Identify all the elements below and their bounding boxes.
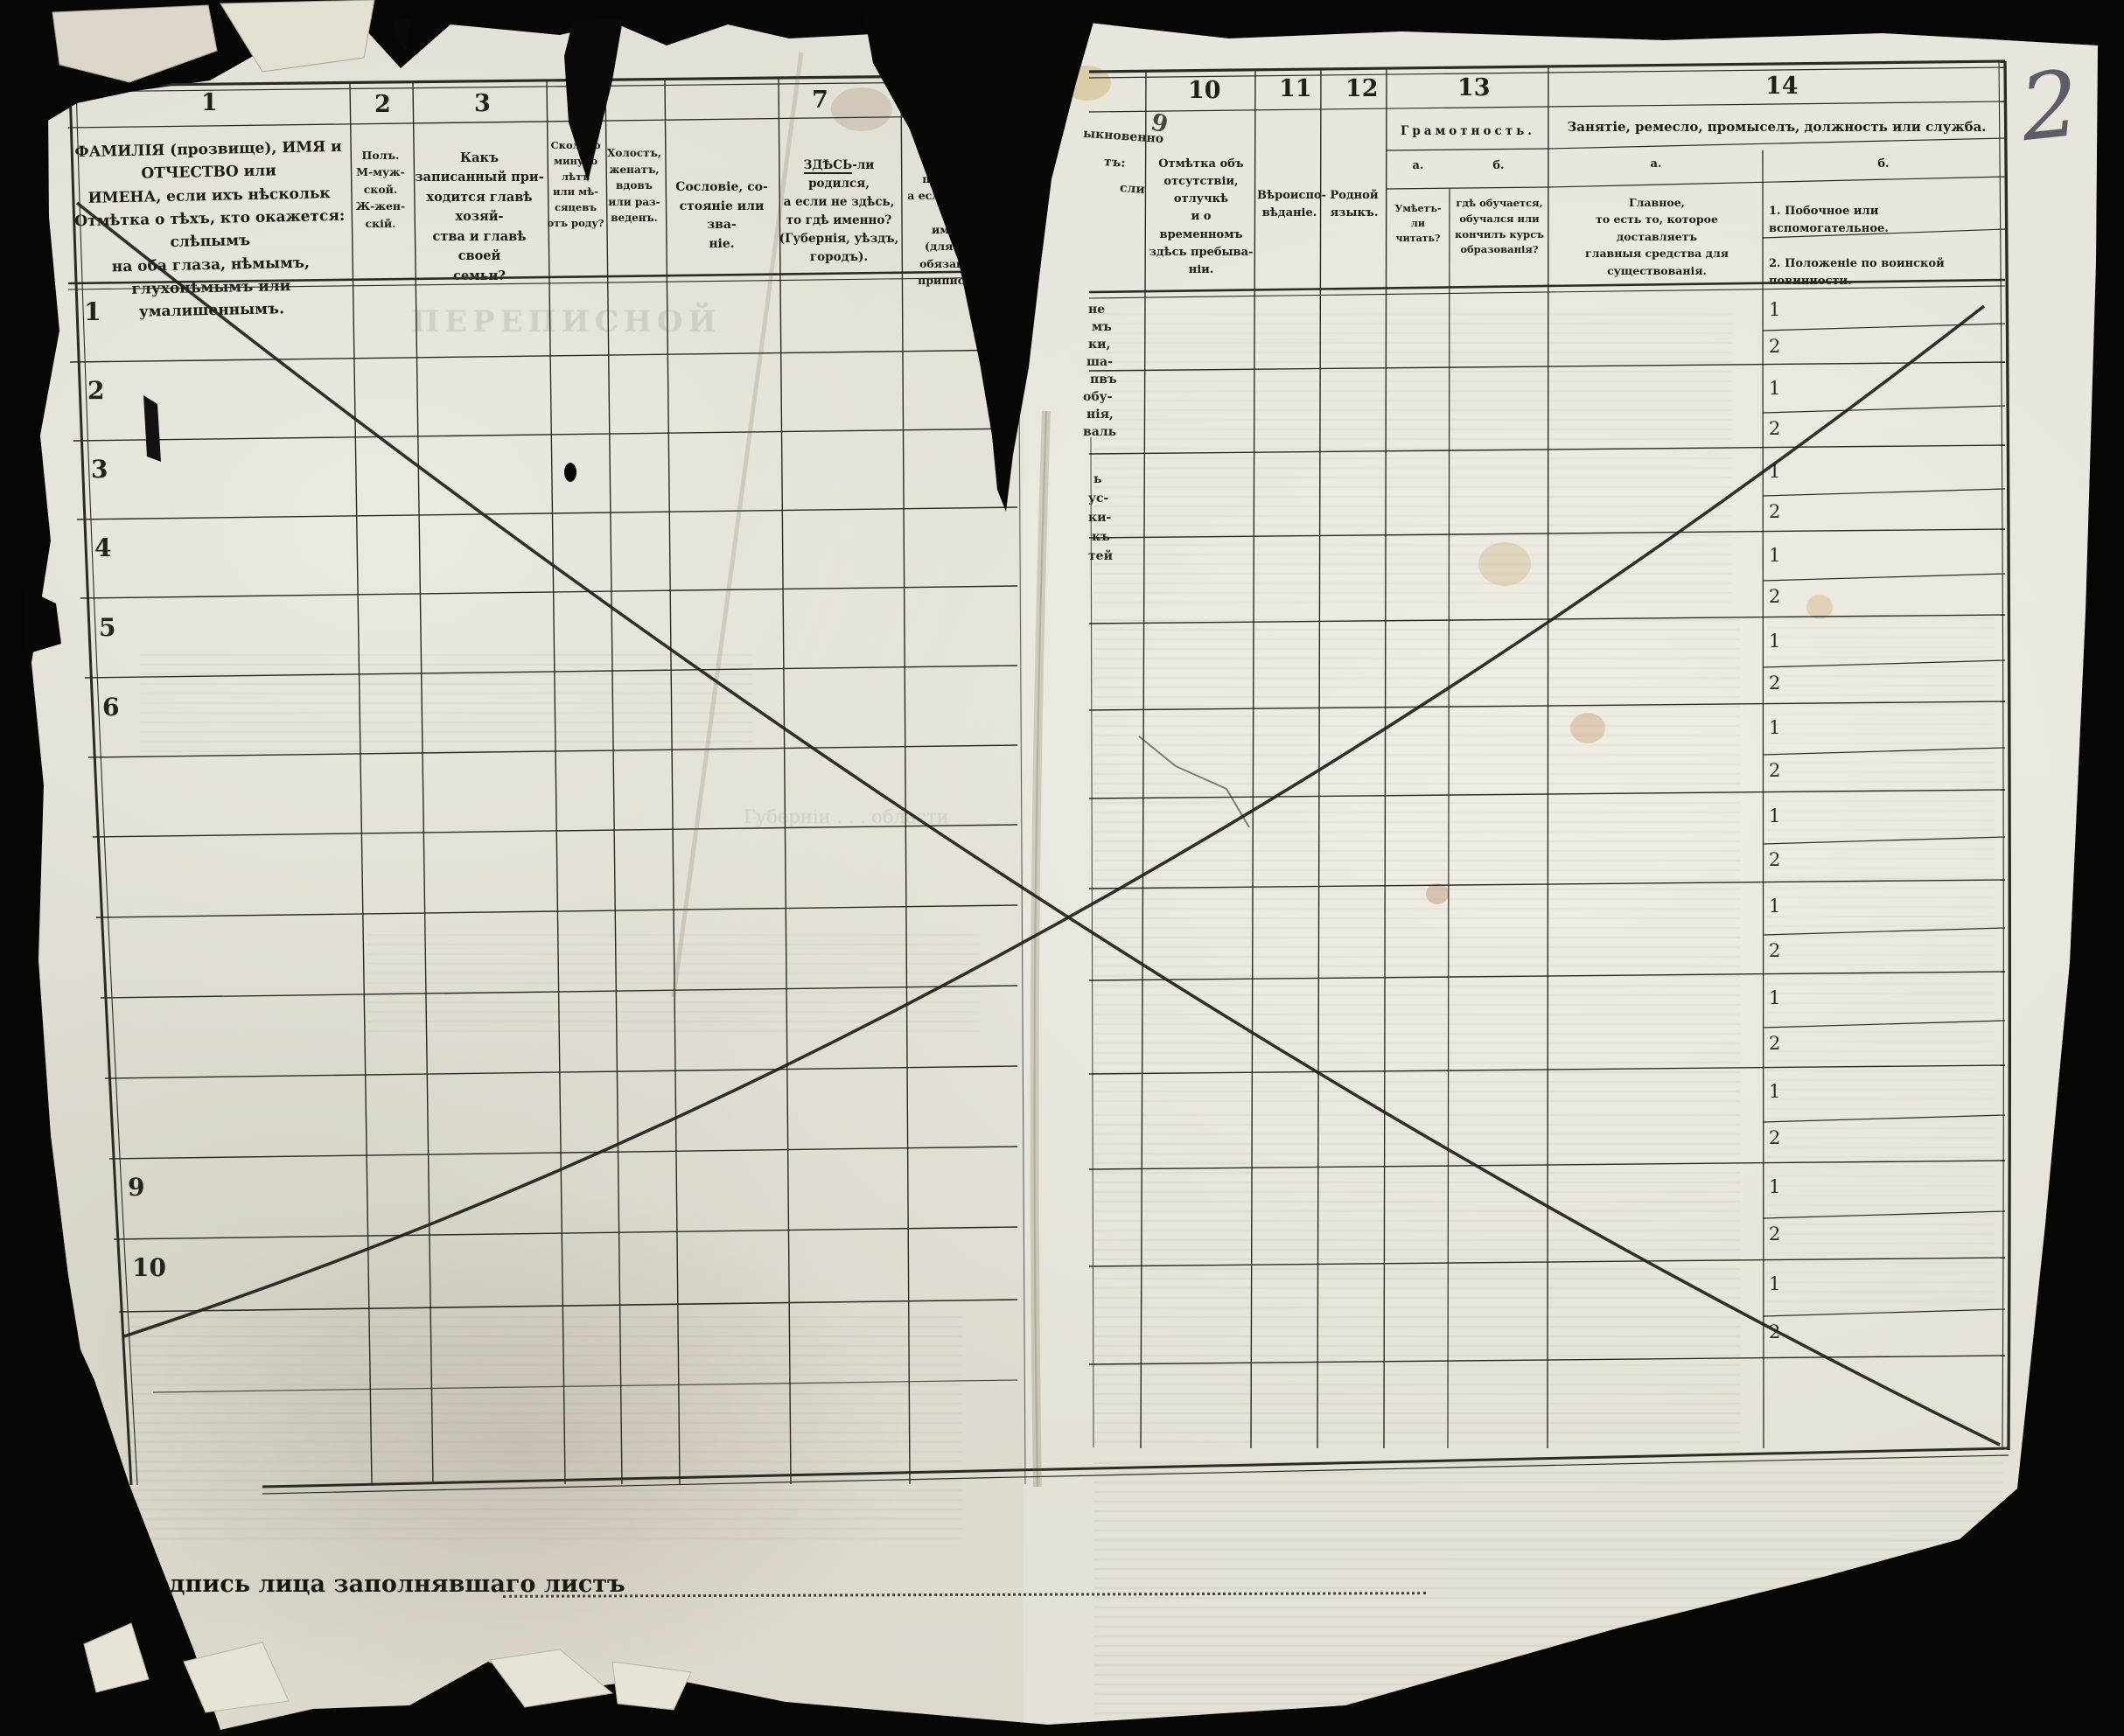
torn-notch: [564, 19, 623, 182]
census-form-scan: ПЕРЕПИСНОЙ Губерніи . . . области 1 2 3 …: [0, 0, 2124, 1736]
paper-scrap: [84, 1623, 149, 1692]
paper-scrap: [184, 1642, 289, 1712]
paper-scrap: [490, 1649, 612, 1707]
table-grid-and-tears: [0, 0, 2124, 1736]
paper-scrap: [612, 1662, 691, 1710]
paper-scrap: [220, 0, 374, 72]
hole: [564, 463, 576, 482]
dark-mark: [143, 395, 161, 462]
central-tear: [864, 16, 1095, 512]
edge-nick: [23, 588, 61, 654]
torn-notch: [392, 19, 411, 51]
